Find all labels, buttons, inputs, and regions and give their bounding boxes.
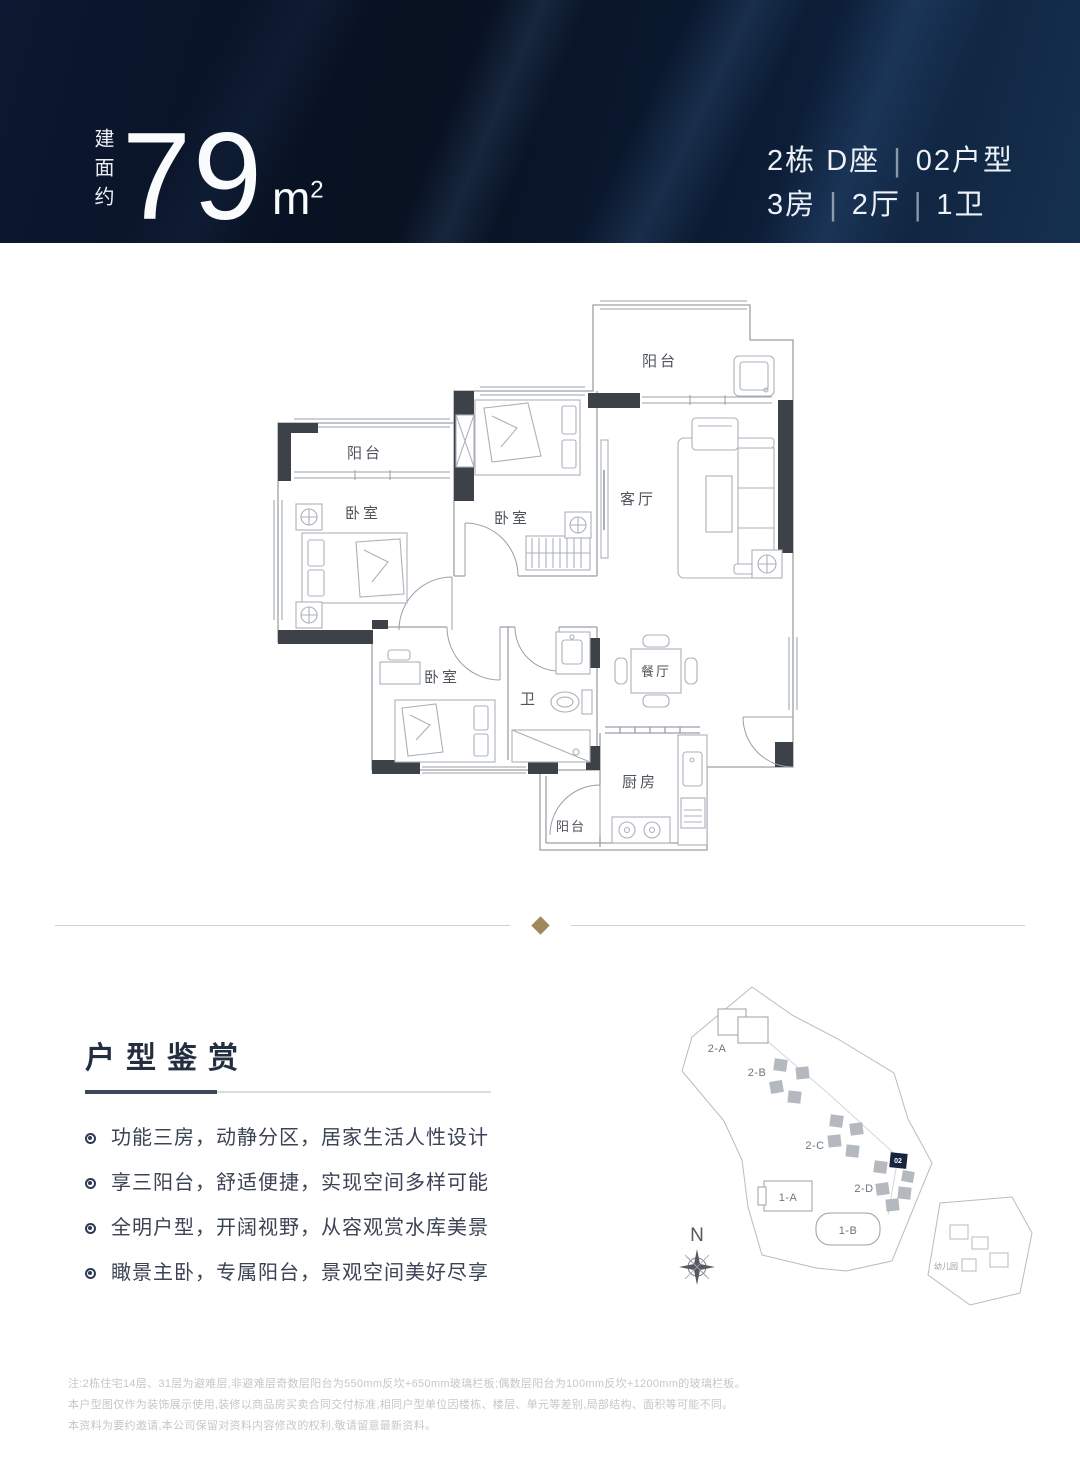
rooms-label: 3房 [767, 189, 816, 221]
area-unit-base: m [272, 172, 310, 224]
divider-line-right [571, 925, 1026, 926]
area-block: 建面约 79 m2 [92, 127, 324, 229]
area-prefix-label: 建面约 [92, 128, 112, 215]
bullet-icon [85, 1223, 96, 1234]
hvac-symbol [296, 602, 322, 628]
wardrobe-icon [526, 536, 590, 570]
unit-info-line2: 3房|2厅|1卫 [767, 183, 1014, 227]
kindergarten-parcel [928, 1197, 1032, 1305]
feature-text: 功能三房，动静分区，居家生活人性设计 [111, 1127, 489, 1149]
bed-icon [395, 700, 495, 762]
toilet-icon [551, 690, 592, 714]
hvac-symbol [296, 504, 322, 530]
label-bedroom-bottom: 卧室 [424, 669, 460, 686]
baths-label: 1卫 [936, 189, 985, 221]
unit-info-block: 2栋 D座|02户型 3房|2厅|1卫 [767, 139, 1014, 227]
selected-unit-badge: 02 [889, 1152, 907, 1169]
label-1b: 1-B [839, 1225, 858, 1237]
coffee-table-icon [706, 476, 732, 532]
label-bedroom-left: 卧室 [345, 505, 381, 522]
header-banner: 建面约 79 m2 2栋 D座|02户型 3房|2厅|1卫 [0, 0, 1080, 243]
divider-line-left [55, 925, 510, 926]
disclaimer-line: 本户型图仅作为装饰展示使用,装修以商品房买卖合同交付标准,相同户型单位因楼栋、楼… [68, 1395, 1038, 1416]
selected-unit-label: 02 [894, 1158, 902, 1165]
label-kindergarten: 幼儿园 [934, 1261, 958, 1271]
label-2c: 2-C [805, 1140, 824, 1152]
tv-console-icon [601, 440, 608, 558]
unit-info-line1: 2栋 D座|02户型 [767, 139, 1014, 183]
label-kitchen: 厨房 [622, 774, 658, 791]
label-top-balcony: 阳台 [642, 353, 678, 370]
bullet-icon [85, 1133, 96, 1144]
site-map-drawing: 02 2-A 2-B 2-C 2-D [640, 975, 1080, 1315]
area-unit: m2 [272, 171, 324, 225]
diamond-icon [531, 916, 549, 934]
label-dining-room: 餐厅 [641, 664, 671, 679]
label-bedroom-middle: 卧室 [494, 510, 530, 527]
features-section: 户型鉴赏 功能三房，动静分区，居家生活人性设计 享三阳台，舒适便捷，实现空间多样… [85, 1033, 515, 1307]
feature-item: 功能三房，动静分区，居家生活人性设计 [85, 1127, 515, 1149]
floor-plan: 阳台 客厅 阳台 卧室 卧室 卧室 卫 餐厅 厨房 阳台 [260, 290, 820, 880]
disclaimer: 注:2栋住宅14层、31层为避难层,非避难层奇数层阳台为550mm反坎+650m… [68, 1374, 1038, 1437]
features-title: 户型鉴赏 [85, 1033, 515, 1077]
label-2a: 2-A [708, 1043, 727, 1055]
feature-item: 享三阳台，舒适便捷，实现空间多样可能 [85, 1172, 515, 1194]
ac-unit-icon [752, 550, 782, 578]
building-label: 2栋 D座 [767, 145, 880, 177]
bed-icon [302, 533, 407, 603]
label-bottom-balcony: 阳台 [556, 819, 586, 834]
feature-text: 全明户型，开阔视野，从容观赏水库美景 [111, 1217, 489, 1239]
floor-plan-drawing: 阳台 客厅 阳台 卧室 卧室 卧室 卫 餐厅 厨房 阳台 [260, 290, 820, 880]
label-2b: 2-B [748, 1067, 767, 1079]
feature-text: 瞰景主卧，专属阳台，景观空间美好尽享 [111, 1262, 489, 1284]
feature-item: 瞰景主卧，专属阳台，景观空间美好尽享 [85, 1262, 515, 1284]
area-unit-sup: 2 [310, 177, 323, 204]
poster-page: 建面约 79 m2 2栋 D座|02户型 3房|2厅|1卫 [0, 0, 1080, 1467]
site-map: 02 2-A 2-B 2-C 2-D [640, 975, 1080, 1315]
area-value: 79 [122, 127, 264, 229]
shower-icon [512, 730, 590, 762]
title-underline [85, 1091, 491, 1093]
separator: | [880, 137, 916, 185]
building-outline-2a [718, 1009, 768, 1043]
separator: | [901, 181, 937, 229]
desk-icon [380, 650, 420, 684]
label-1a: 1-A [779, 1192, 798, 1204]
section-divider [55, 916, 1025, 934]
compass-north-icon: N [679, 1225, 715, 1285]
label-left-balcony: 阳台 [347, 445, 383, 462]
hvac-symbol [565, 512, 591, 538]
label-bathroom: 卫 [520, 691, 538, 708]
bed-icon [475, 400, 580, 475]
sink-icon [556, 632, 590, 674]
disclaimer-line: 本资料为要约邀请,本公司保留对资料内容修改的权利,敬请留意最新资料。 [68, 1416, 1038, 1437]
armchair-icon [692, 418, 738, 450]
bullet-icon [85, 1178, 96, 1189]
feature-list: 功能三房，动静分区，居家生活人性设计 享三阳台，舒适便捷，实现空间多样可能 全明… [85, 1127, 515, 1284]
bullet-icon [85, 1268, 96, 1279]
washer-icon [734, 356, 774, 396]
shaft-hatch [456, 415, 474, 467]
feature-item: 全明户型，开阔视野，从容观赏水库美景 [85, 1217, 515, 1239]
unit-type-label: 02户型 [916, 145, 1014, 177]
compass-n-label: N [690, 1225, 704, 1246]
disclaimer-line: 注:2栋住宅14层、31层为避难层,非避难层奇数层阳台为550mm反坎+650m… [68, 1374, 1038, 1395]
label-2d: 2-D [854, 1183, 873, 1195]
feature-text: 享三阳台，舒适便捷，实现空间多样可能 [111, 1172, 489, 1194]
kitchen-counter-icon [678, 735, 707, 845]
stove-icon [612, 817, 670, 843]
label-living-room: 客厅 [620, 491, 656, 508]
halls-label: 2厅 [852, 189, 901, 221]
separator: | [816, 181, 852, 229]
